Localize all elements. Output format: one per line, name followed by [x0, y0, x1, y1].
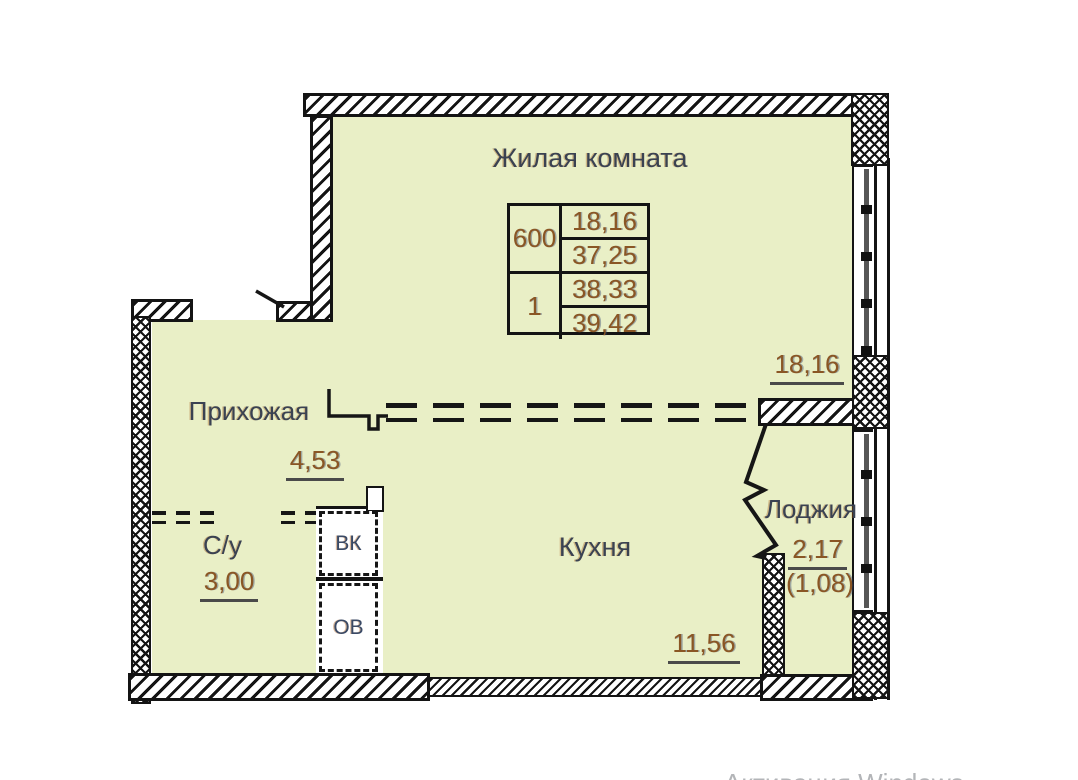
plan-line-symbols — [0, 0, 1078, 780]
threshold-bracket — [329, 389, 388, 429]
kitchen-area-value: 11,56 — [668, 628, 739, 664]
door-swing-line — [256, 291, 284, 307]
os-activation-watermark: Активация Windows — [724, 768, 964, 780]
room-label-kitchen: Кухня — [530, 532, 660, 563]
loggia-area: 2,17 — [775, 534, 860, 570]
info-table: 600 18,16 37,25 1 38,33 39,42 — [507, 203, 650, 335]
kitchen-area: 11,56 — [658, 628, 750, 664]
room-label-loggia: Лоджия — [760, 494, 862, 525]
info-table-value-1: 18,16 — [562, 206, 647, 240]
loggia-area-alt: (1,08) — [770, 568, 870, 599]
bathroom-area: 3,00 — [183, 566, 275, 602]
room-label-bathroom: С/у — [185, 530, 260, 561]
info-table-value-3: 38,33 — [562, 274, 647, 308]
living-dimension-value: 18,16 — [770, 349, 843, 385]
info-table-rooms-cell: 1 — [510, 274, 562, 339]
room-label-hallway: Прихожая — [178, 396, 320, 427]
hallway-area: 4,53 — [270, 445, 360, 481]
living-dimension: 18,16 — [765, 349, 849, 385]
info-table-value-2: 37,25 — [562, 240, 647, 274]
info-table-unit-cell: 600 — [510, 206, 562, 274]
room-label-living: Жилая комната — [470, 143, 710, 174]
floor-plan: ВК ОВ 600 18,16 37,25 1 38,33 39,42 Ж — [0, 0, 1078, 780]
hallway-area-value: 4,53 — [286, 445, 345, 481]
bathroom-area-value: 3,00 — [200, 566, 259, 602]
loggia-area-value: 2,17 — [788, 534, 847, 570]
break-line — [745, 424, 776, 558]
info-table-value-4: 39,42 — [562, 308, 647, 339]
